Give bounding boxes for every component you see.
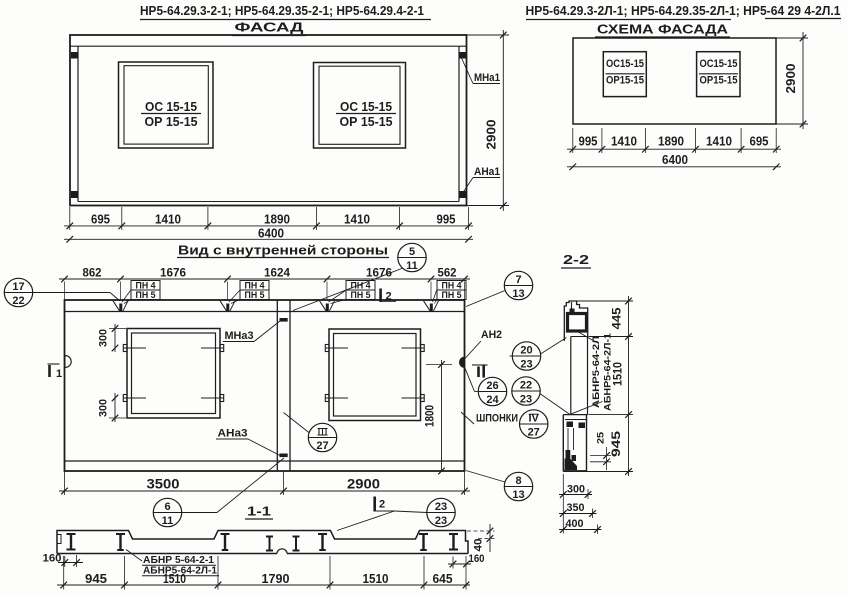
svg-text:СХЕМА ФАСАДА: СХЕМА ФАСАДА: [597, 22, 729, 37]
svg-text:1510: 1510: [613, 362, 625, 386]
svg-text:ОР 15-15: ОР 15-15: [340, 115, 393, 129]
svg-text:ПН 5: ПН 5: [136, 290, 156, 300]
svg-text:1410: 1410: [611, 135, 637, 149]
svg-text:995: 995: [437, 213, 456, 227]
svg-text:350: 350: [567, 502, 585, 514]
svg-text:27: 27: [316, 440, 328, 452]
svg-text:6400: 6400: [258, 227, 284, 241]
svg-text:40: 40: [473, 539, 485, 552]
svg-text:ОС 15-15: ОС 15-15: [340, 100, 392, 114]
svg-text:МНа1: МНа1: [474, 72, 500, 84]
svg-text:Вид с внутренней стороны: Вид с внутренней стороны: [178, 243, 388, 258]
svg-text:АНа1: АНа1: [474, 166, 500, 178]
svg-text:ПН 4: ПН 4: [351, 280, 371, 290]
svg-text:3500: 3500: [147, 477, 180, 492]
svg-text:ПН 4: ПН 4: [136, 280, 156, 290]
svg-text:ОР15-15: ОР15-15: [700, 75, 738, 87]
svg-text:1-1: 1-1: [247, 505, 271, 519]
svg-text:300: 300: [98, 329, 110, 347]
svg-text:ПН 5: ПН 5: [245, 290, 265, 300]
svg-text:1800: 1800: [425, 405, 437, 427]
svg-text:17: 17: [12, 281, 24, 293]
svg-text:645: 645: [433, 572, 453, 586]
svg-text:23: 23: [435, 515, 447, 527]
svg-text:ПН 4: ПН 4: [245, 280, 265, 290]
svg-text:11: 11: [406, 260, 418, 272]
svg-text:1790: 1790: [262, 572, 290, 586]
svg-text:1: 1: [56, 368, 62, 380]
svg-text:АБНР5-64-2Л: АБНР5-64-2Л: [591, 336, 602, 408]
svg-text:ОР 15-15: ОР 15-15: [145, 115, 198, 129]
svg-text:МНа3: МНа3: [225, 330, 254, 342]
svg-text:ПН 4: ПН 4: [442, 280, 462, 290]
svg-text:562: 562: [438, 268, 457, 280]
svg-text:945: 945: [85, 572, 107, 586]
svg-text:2900: 2900: [347, 477, 380, 492]
svg-text:995: 995: [579, 135, 598, 149]
svg-text:ФАСАД: ФАСАД: [235, 20, 305, 35]
svg-text:1624: 1624: [264, 268, 291, 280]
svg-text:22: 22: [520, 380, 532, 392]
svg-text:ПН 5: ПН 5: [442, 290, 462, 300]
svg-text:ПН 5: ПН 5: [351, 290, 371, 300]
svg-text:2-2: 2-2: [563, 253, 589, 267]
svg-text:ОС 15-15: ОС 15-15: [145, 100, 197, 114]
svg-text:695: 695: [750, 135, 769, 149]
svg-text:8: 8: [515, 475, 521, 487]
svg-text:1890: 1890: [658, 135, 684, 149]
svg-text:6400: 6400: [662, 153, 688, 167]
svg-text:ОС15-15: ОС15-15: [606, 58, 644, 70]
svg-text:23: 23: [520, 359, 532, 371]
svg-text:695: 695: [91, 213, 110, 227]
svg-text:2: 2: [379, 499, 385, 511]
svg-text:23: 23: [435, 501, 447, 513]
svg-text:АН2: АН2: [481, 329, 502, 341]
svg-text:13: 13: [512, 288, 524, 300]
svg-text:445: 445: [612, 307, 624, 330]
svg-text:5: 5: [409, 246, 415, 258]
svg-text:1410: 1410: [344, 213, 370, 227]
svg-text:ОС15-15: ОС15-15: [700, 58, 738, 70]
svg-text:ШПОНКИ: ШПОНКИ: [476, 413, 518, 425]
svg-text:1410: 1410: [155, 213, 181, 227]
svg-text:300: 300: [98, 399, 110, 417]
svg-text:2900: 2900: [485, 119, 499, 149]
svg-text:2900: 2900: [784, 63, 798, 93]
svg-text:20: 20: [520, 345, 532, 357]
svg-text:160: 160: [469, 553, 485, 565]
svg-text:13: 13: [512, 489, 524, 501]
svg-text:1890: 1890: [264, 213, 290, 227]
svg-text:22: 22: [12, 295, 24, 307]
svg-text:1676: 1676: [366, 268, 392, 280]
svg-text:7: 7: [515, 274, 521, 286]
svg-text:ОР15-15: ОР15-15: [606, 75, 644, 87]
svg-text:400: 400: [566, 518, 584, 530]
svg-text:11: 11: [162, 515, 174, 527]
svg-text:1676: 1676: [160, 268, 186, 280]
svg-text:300: 300: [567, 484, 585, 496]
svg-text:23: 23: [520, 394, 532, 406]
svg-text:26: 26: [486, 380, 498, 392]
svg-text:АНа3: АНа3: [218, 428, 248, 440]
svg-text:1510: 1510: [163, 572, 186, 586]
svg-text:6: 6: [164, 501, 170, 513]
svg-text:НР5-64.29.3-2-1; НР5-64.29.35-: НР5-64.29.3-2-1; НР5-64.29.35-2-1; НР5-6…: [140, 3, 424, 18]
svg-text:945: 945: [611, 430, 623, 457]
svg-text:862: 862: [83, 268, 102, 280]
svg-text:2: 2: [385, 291, 391, 303]
svg-text:НР5-64.29.3-2Л-1; НР5-64.29.35: НР5-64.29.3-2Л-1; НР5-64.29.35-2Л-1; НР5…: [526, 3, 841, 18]
svg-text:1410: 1410: [706, 135, 732, 149]
svg-text:25: 25: [596, 432, 606, 444]
svg-text:24: 24: [486, 394, 499, 406]
svg-text:1510: 1510: [363, 572, 389, 586]
svg-text:27: 27: [528, 427, 540, 439]
